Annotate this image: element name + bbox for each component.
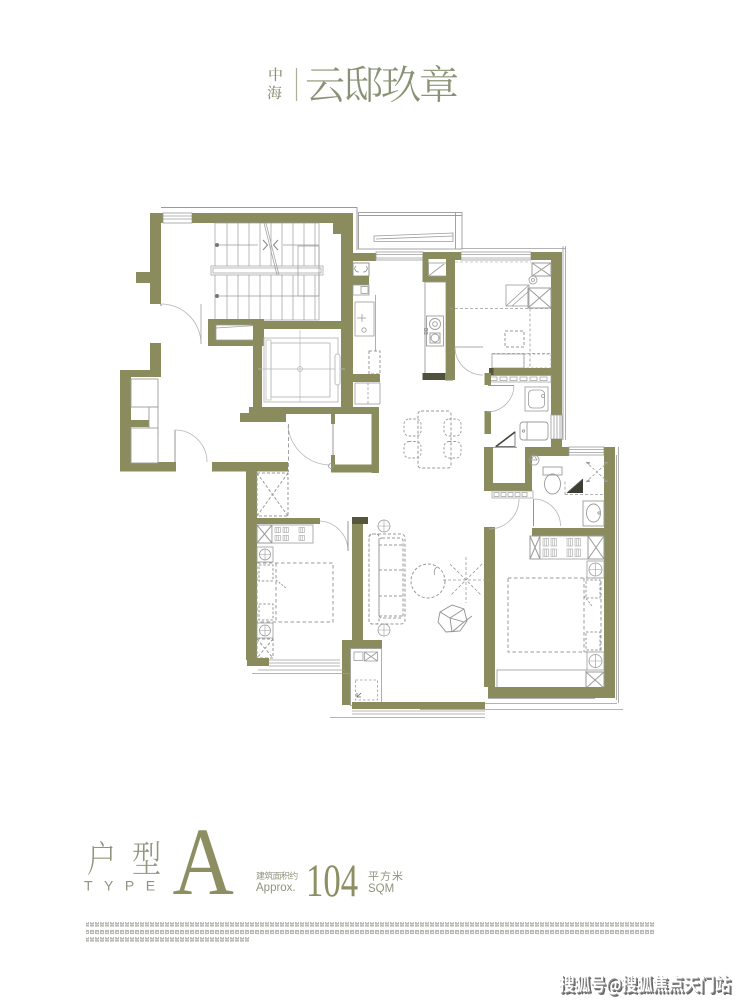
svg-text:A: A xyxy=(173,808,234,915)
svg-text:SQM: SQM xyxy=(368,883,394,895)
svg-text:TYPE: TYPE xyxy=(84,878,167,894)
svg-text:104: 104 xyxy=(306,854,358,906)
svg-text:Approx.: Approx. xyxy=(256,882,296,894)
